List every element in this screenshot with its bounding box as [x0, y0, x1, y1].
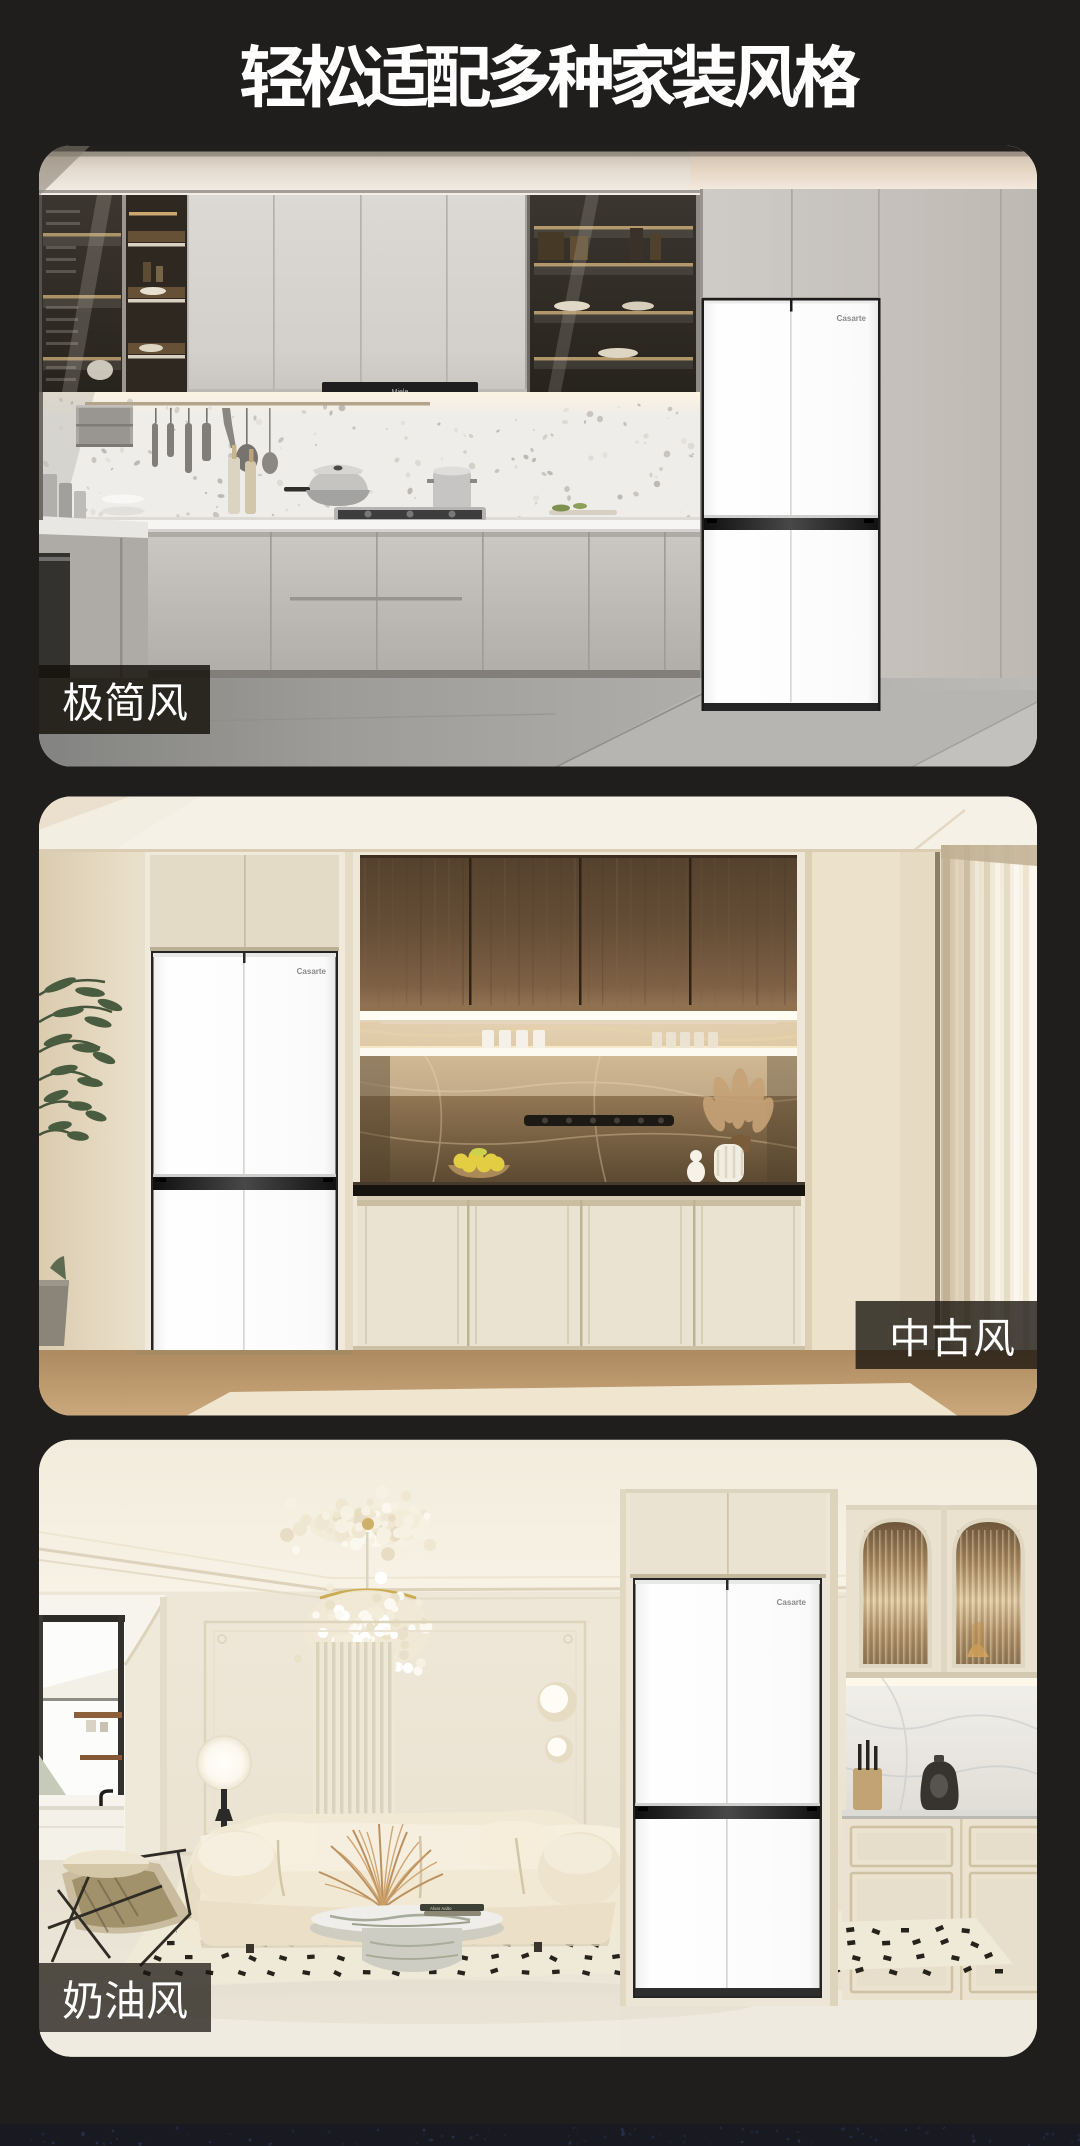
svg-text:Casarte: Casarte	[777, 1598, 807, 1607]
svg-text:Casarte: Casarte	[837, 314, 867, 323]
svg-text:Casarte: Casarte	[297, 967, 327, 976]
svg-text:Alvar Aalto: Alvar Aalto	[430, 1906, 452, 1911]
